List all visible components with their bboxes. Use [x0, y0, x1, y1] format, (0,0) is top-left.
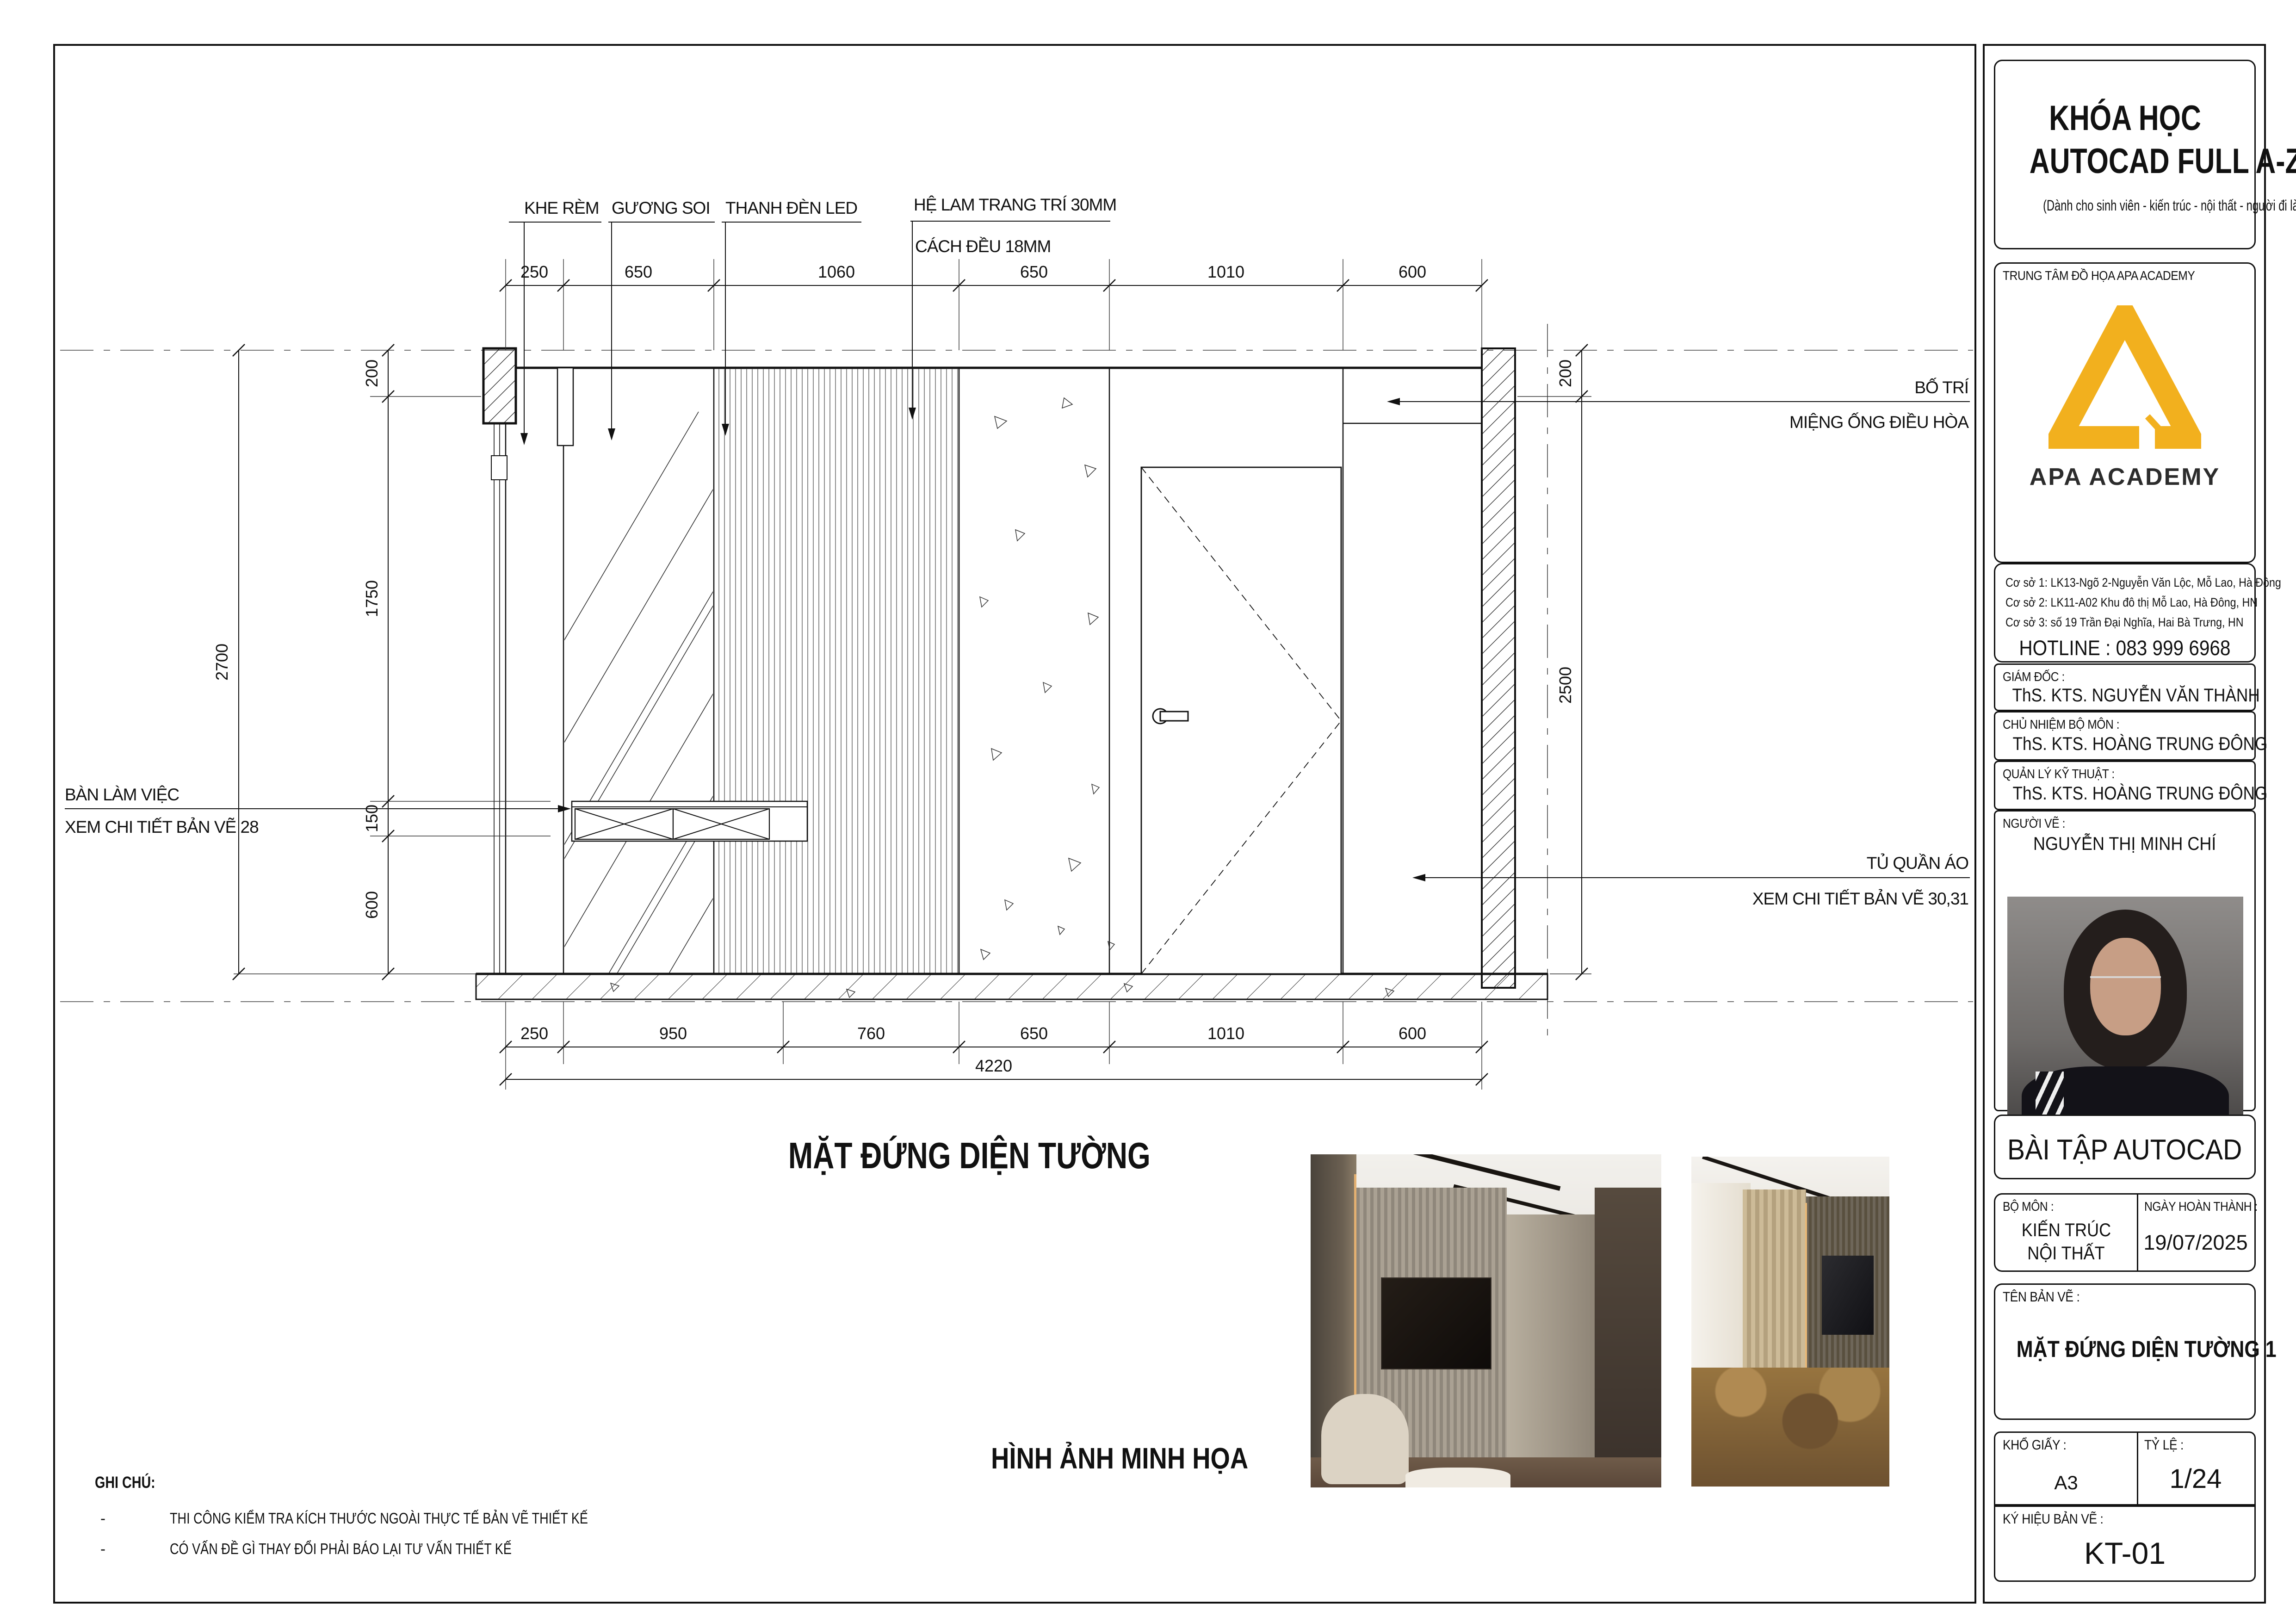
dept-head-label: CHỦ NHIỆM BỘ MÔN : [2003, 717, 2119, 732]
tb-exercise: BÀI TẬP AUTOCAD [1994, 1115, 2256, 1179]
photo2-mirror-tv [1822, 1256, 1873, 1335]
note-bullet: - [95, 1540, 170, 1558]
note-text: CÓ VẤN ĐỀ GÌ THAY ĐỔI PHẢI BÁO LẠI TƯ VẤ… [170, 1540, 512, 1558]
photo1-bed-corner [1405, 1468, 1510, 1487]
tb-director: GIÁM ĐỐC : ThS. KTS. NGUYỄN VĂN THÀNH [1994, 663, 2256, 711]
elevation-title-text: MẶT ĐỨNG DIỆN TƯỜNG [788, 1134, 1151, 1177]
portrait-glasses [2090, 976, 2161, 991]
tb-subject-row: BỘ MÔN : KIẾN TRÚC NỘI THẤT NGÀY HOÀN TH… [1994, 1193, 2256, 1272]
notes-heading-text: GHI CHÚ: [95, 1474, 155, 1492]
tb-sheet-name: TÊN BẢN VẼ : MẶT ĐỨNG DIỆN TƯỜNG 1 [1994, 1283, 2256, 1420]
tech-manager-label: QUẢN LÝ KỸ THUẬT : [2003, 767, 2115, 781]
course-title-line2: AUTOCAD FULL A-Z [1995, 141, 2254, 181]
tech-manager-name: ThS. KTS. HOÀNG TRUNG ĐÔNG [1995, 783, 2254, 804]
title-block: KHÓA HỌC AUTOCAD FULL A-Z (Dành cho sinh… [1983, 44, 2266, 1604]
exercise-title: BÀI TẬP AUTOCAD [1995, 1134, 2254, 1166]
scale-value: 1/24 [2137, 1463, 2254, 1494]
subject-label: BỘ MÔN : [2003, 1199, 2054, 1214]
director-name: ThS. KTS. NGUYỄN VĂN THÀNH [1995, 685, 2254, 706]
scale-label: TỶ LỆ : [2144, 1437, 2184, 1453]
photo1-armchair [1321, 1394, 1409, 1484]
notes-heading: GHI CHÚ: [95, 1474, 680, 1492]
code-label: KÝ HIỆU BẢN VẼ : [2003, 1511, 2103, 1527]
images-caption: HÌNH ẢNH MINH HỌA [939, 1441, 1300, 1475]
code-value: KT-01 [1995, 1536, 2254, 1571]
address-line: Cơ sở 3: số 19 Trần Đại Nghĩa, Hai Bà Tr… [2005, 613, 2243, 632]
address-line: Cơ sở 2: LK11-A02 Khu đô thị Mỗ Lao, Hà … [2005, 593, 2258, 613]
subject-value: KIẾN TRÚC NỘI THẤT [1995, 1219, 2137, 1265]
apa-logo-icon [2048, 305, 2201, 449]
center-label: TRUNG TÂM ĐỒ HỌA APA ACADEMY [2003, 268, 2195, 283]
tb-logo-box: TRUNG TÂM ĐỒ HỌA APA ACADEMY APA ACADEMY [1994, 262, 2256, 563]
course-subtitle: (Dành cho sinh viên - kiến trúc - nội th… [1995, 197, 2254, 214]
address-line: Cơ sở 1: LK13-Ngõ 2-Nguyễn Văn Lộc, Mỗ L… [2005, 573, 2281, 593]
hotline: HOTLINE : 083 999 6968 [1995, 636, 2254, 660]
tb-dept-head: CHỦ NHIỆM BỘ MÔN : ThS. KTS. HOÀNG TRUNG… [1994, 711, 2256, 761]
notes-block: GHI CHÚ: - THI CÔNG KIỂM TRA KÍCH THƯỚC … [95, 1474, 680, 1558]
note-item: - CÓ VẤN ĐỀ GÌ THAY ĐỔI PHẢI BÁO LẠI TƯ … [95, 1540, 680, 1558]
address-list: Cơ sở 1: LK13-Ngõ 2-Nguyễn Văn Lộc, Mỗ L… [1995, 564, 2254, 632]
tb-drafter: NGƯỜI VẼ : NGUYỄN THỊ MINH CHÍ [1994, 810, 2256, 1111]
paper-label: KHỔ GIẤY : [2003, 1437, 2066, 1453]
sheet-name-label: TÊN BẢN VẼ : [2003, 1289, 2079, 1305]
director-label: GIÁM ĐỐC : [2003, 669, 2065, 684]
drafter-label: NGƯỜI VẼ : [2003, 816, 2065, 831]
tb-code-row: KÝ HIỆU BẢN VẼ : KT-01 [1994, 1505, 2256, 1582]
photo1-wardrobe [1595, 1188, 1661, 1487]
tb-tech-manager: QUẢN LÝ KỸ THUẬT : ThS. KTS. HOÀNG TRUNG… [1994, 761, 2256, 810]
note-text: THI CÔNG KIỂM TRA KÍCH THƯỚC NGOÀI THỰC … [170, 1510, 588, 1527]
photo-interior-render-1 [1311, 1154, 1661, 1487]
photo1-tv [1381, 1277, 1491, 1369]
paper-size: A3 [1995, 1472, 2137, 1494]
tb-paper-scale-row: KHỔ GIẤY : A3 TỶ LỆ : 1/24 [1994, 1431, 2256, 1505]
dept-head-name: ThS. KTS. HOÀNG TRUNG ĐÔNG [1995, 734, 2254, 755]
tb-address-box: Cơ sở 1: LK13-Ngõ 2-Nguyễn Văn Lộc, Mỗ L… [1994, 563, 2256, 663]
drawing-frame [53, 44, 1976, 1604]
images-caption-text: HÌNH ẢNH MINH HỌA [991, 1441, 1248, 1475]
photo-interior-render-2 [1691, 1157, 1889, 1487]
tb-course-header: KHÓA HỌC AUTOCAD FULL A-Z (Dành cho sinh… [1994, 60, 2256, 249]
photo1-side-wall [1507, 1214, 1598, 1487]
drafter-name: NGUYỄN THỊ MINH CHÍ [1995, 834, 2254, 855]
logo-text: APA ACADEMY [1995, 463, 2254, 491]
photo2-bed [1691, 1368, 1889, 1487]
completion-date: 19/07/2025 [2137, 1231, 2254, 1255]
elevation-title: MẶT ĐỨNG DIỆN TƯỜNG [692, 1134, 1247, 1177]
note-bullet: - [95, 1510, 170, 1527]
sheet-name: MẶT ĐỨNG DIỆN TƯỜNG 1 [1995, 1336, 2254, 1363]
note-item: - THI CÔNG KIỂM TRA KÍCH THƯỚC NGOÀI THỰ… [95, 1510, 680, 1527]
completion-label: NGÀY HOÀN THÀNH : [2144, 1199, 2258, 1214]
course-title-line1: KHÓA HỌC [1995, 98, 2254, 138]
